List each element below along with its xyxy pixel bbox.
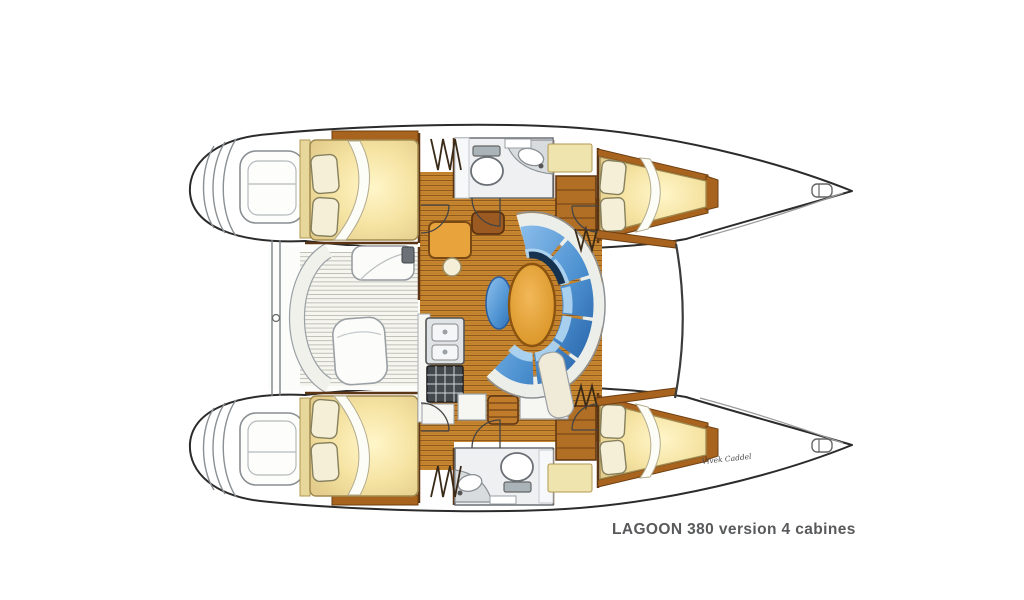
chart-table <box>429 222 471 258</box>
pillow <box>311 442 340 482</box>
pillow <box>599 440 626 475</box>
bow-fitting-starboard <box>812 439 832 452</box>
floor-plan-page: LAGOON 380 version 4 cabines Vivek Cadde… <box>0 0 1024 600</box>
pillow <box>310 399 339 439</box>
head-port <box>455 138 553 198</box>
pillow <box>600 404 626 438</box>
dining-table <box>509 264 555 346</box>
coachroof-front <box>596 230 683 406</box>
pillow <box>600 197 626 231</box>
helm-seat <box>352 246 414 280</box>
pillow <box>599 160 626 195</box>
aft-beam-fitting <box>273 315 280 322</box>
toilet-port <box>471 157 503 185</box>
head-starboard <box>455 448 553 505</box>
toilet-starboard <box>501 453 533 481</box>
cockpit-table <box>332 316 388 385</box>
cockpit <box>268 240 420 396</box>
galley-sink-unit <box>426 318 464 364</box>
cabin-port-aft <box>300 131 418 240</box>
toilet-tank-port <box>473 146 500 156</box>
bow-fitting-port <box>812 184 832 197</box>
pillow <box>311 197 340 237</box>
stern-platform-port <box>240 151 304 223</box>
stern-platform-starboard <box>240 413 304 485</box>
toilet-tank-starboard <box>504 482 531 492</box>
chart-stool <box>443 258 461 276</box>
floor-plan-drawing: LAGOON 380 version 4 cabines Vivek Cadde… <box>0 0 1024 600</box>
cabin-starboard-aft <box>300 396 418 505</box>
plan-caption: LAGOON 380 version 4 cabines <box>612 521 856 538</box>
pillow <box>310 154 339 194</box>
